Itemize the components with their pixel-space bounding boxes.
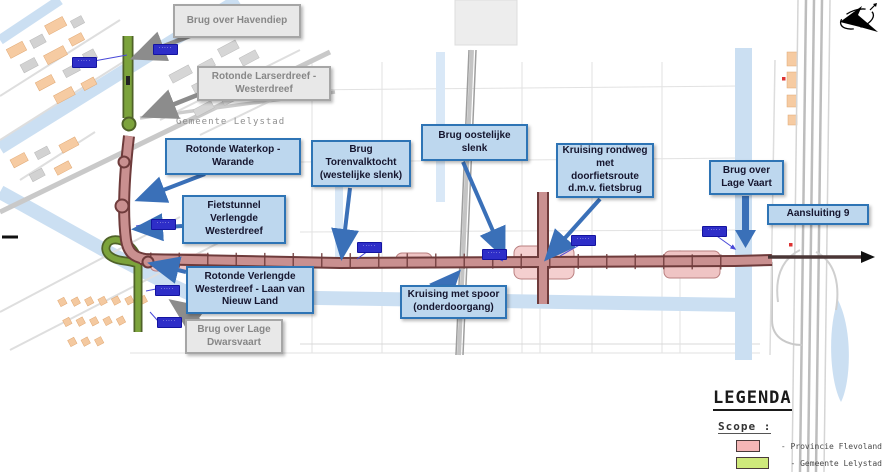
- legend-item-province: - Provincie Flevoland: [736, 439, 882, 453]
- object-code-badge: ·····: [571, 235, 596, 246]
- province-label: - Provincie Flevoland: [781, 442, 882, 451]
- legend-title: LEGENDA: [713, 388, 792, 411]
- municipality-swatch: [736, 457, 769, 469]
- callout-kruising-rondweg: Kruising rondweg met doorfietsroute d.m.…: [556, 143, 654, 198]
- callout-kruising-spoor: Kruising met spoor (onderdoorgang): [400, 285, 507, 319]
- buildings-right: [787, 52, 797, 125]
- municipality-label: - Gemeente Lelystad: [790, 459, 882, 468]
- object-code-badge: ·····: [157, 317, 182, 328]
- callout-fietstunnel: Fietstunnel Verlengde Westerdreef: [182, 195, 286, 244]
- object-code-badge: ·····: [153, 44, 178, 55]
- red-marker: [789, 243, 793, 247]
- callout-rotonde-waterkop: Rotonde Waterkop - Warande: [165, 138, 301, 175]
- object-code-badge: ·····: [357, 242, 382, 253]
- pond: [831, 300, 849, 402]
- province-swatch: [736, 440, 760, 452]
- callout-brug-torenvalktocht: Brug Torenvalktocht (westelijke slenk): [311, 140, 411, 187]
- red-marker: [782, 77, 786, 81]
- callout-brug-lage-vaart: Brug over Lage Vaart: [709, 160, 784, 195]
- callout-brug-lage-dwarsvaart: Brug over Lage Dwarsvaart: [185, 319, 283, 354]
- callout-rotonde-larserdreef: Rotonde Larserdreef - Westerdreef: [197, 66, 331, 101]
- callout-rotonde-verlengde: Rotonde Verlengde Westerdreef - Laan van…: [186, 266, 314, 314]
- object-code-badge: ·····: [482, 249, 507, 260]
- object-code-badge: ·····: [72, 57, 97, 68]
- callout-brug-havendiep: Brug over Havendiep: [173, 4, 301, 38]
- planning-map: Gemeente Lelystad ····· ····· ····· ····…: [0, 0, 882, 472]
- callout-aansluiting-9: Aansluiting 9: [767, 204, 869, 225]
- callout-brug-oostelijke-slenk: Brug oostelijke slenk: [421, 124, 528, 161]
- object-code-badge: ·····: [702, 226, 727, 237]
- legend-scope-label: Scope :: [718, 420, 771, 434]
- legend: LEGENDA Scope : - Provincie Flevoland - …: [700, 388, 882, 470]
- object-code-badge: ·····: [151, 219, 176, 230]
- legend-item-municipality: - Gemeente Lelystad: [736, 456, 882, 470]
- north-arrow-icon: [838, 3, 878, 33]
- municipality-map-label: Gemeente Lelystad: [176, 117, 285, 127]
- object-code-badge: ·····: [155, 285, 180, 296]
